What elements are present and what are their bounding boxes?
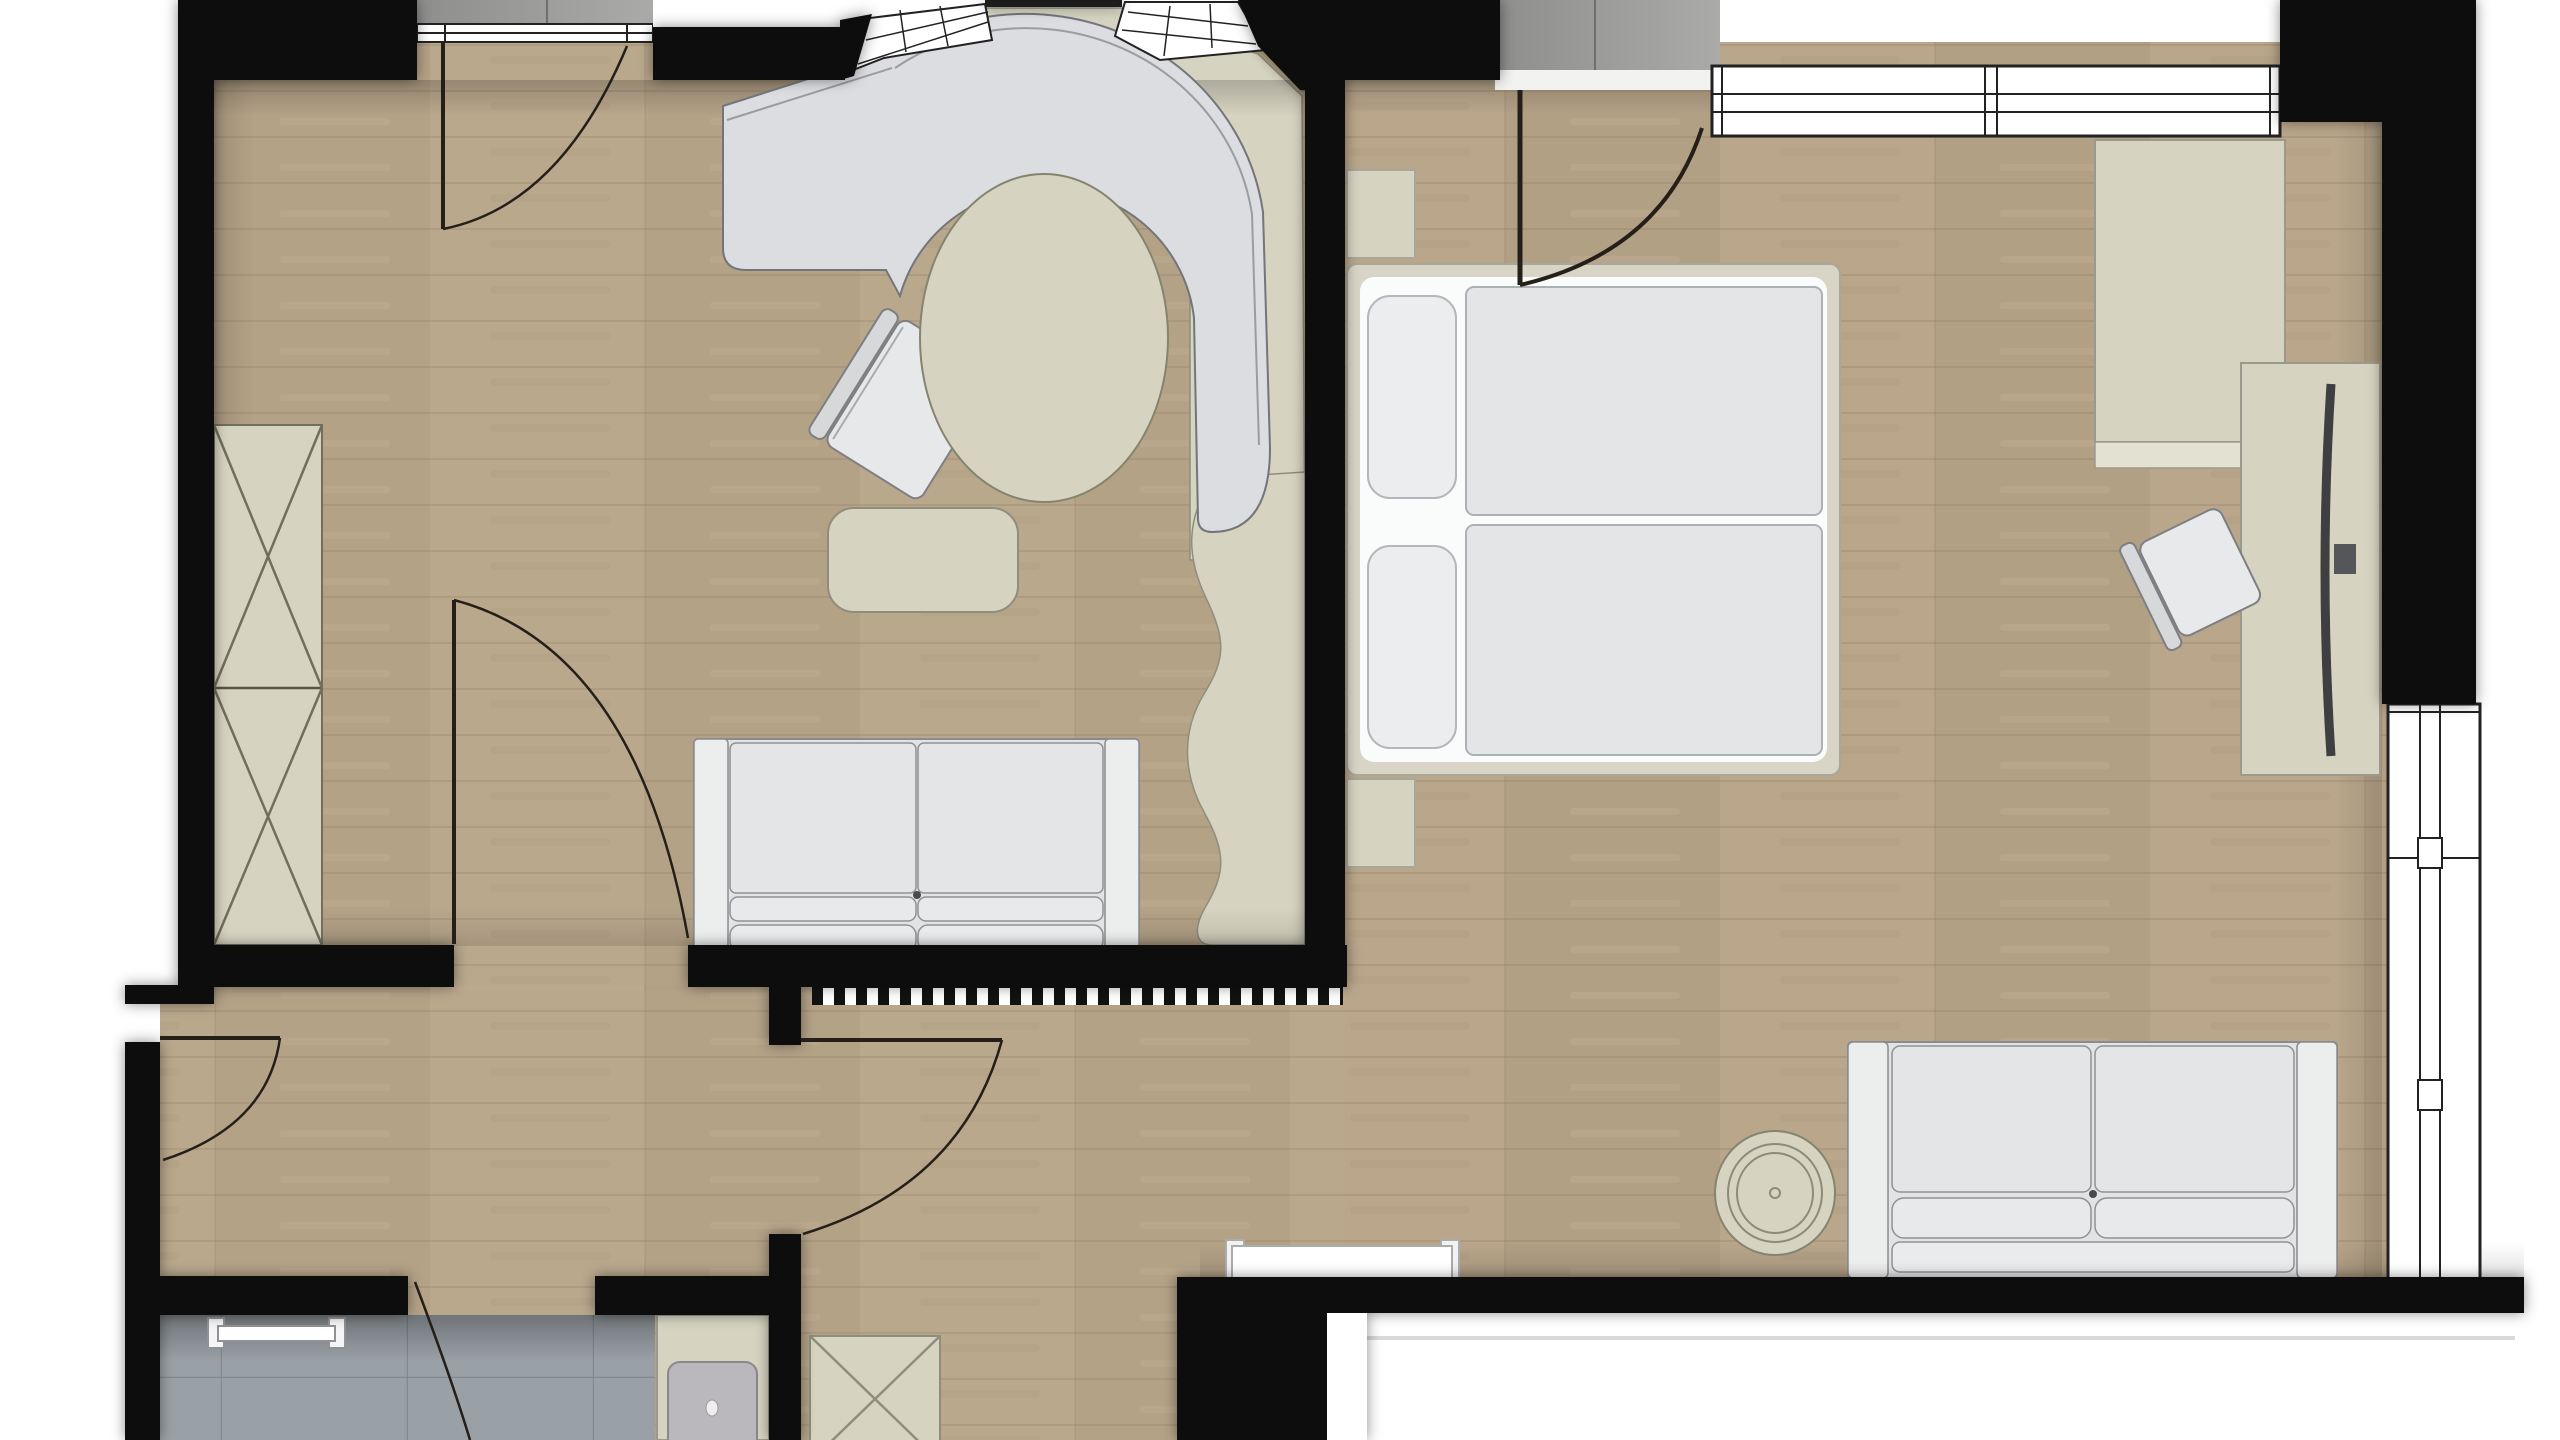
tv-mount [2334, 544, 2356, 574]
bottom-sofa-button [2089, 1190, 2097, 1198]
living-window-slab [417, 0, 653, 24]
bottom-sofa-seat-left [1892, 1046, 2091, 1192]
wall-left-upper [178, 0, 214, 948]
bottom-sofa-frontpad-right [2095, 1198, 2294, 1238]
wall-hall-left-lower [125, 1042, 160, 1440]
living-sofa-seat-right [918, 743, 1103, 893]
bench-top [1232, 1246, 1452, 1280]
bottom-sofa-armrest-right [2297, 1042, 2337, 1278]
bed-pillow-top [1368, 296, 1456, 498]
nightstand-bottom [1347, 779, 1415, 867]
wall-east [2382, 122, 2476, 704]
wall-top-right-corner [2280, 0, 2476, 122]
bottom-sofa-backpad [1892, 1242, 2294, 1272]
bed-pillow-bottom [1368, 546, 1456, 748]
living-sofa-armrest-right [1105, 739, 1139, 953]
sink-unit [657, 1315, 769, 1440]
plan-content [125, 0, 2524, 1440]
living-sofa-frontpad-left [730, 897, 916, 921]
wall-hall-left-jog [125, 985, 214, 1004]
wall-top-left-corner [180, 0, 417, 80]
wardrobe-body [214, 425, 322, 945]
hatch-strip [812, 988, 1343, 1005]
living-sofa-frontpad-right [918, 897, 1103, 921]
wall-south-band [1177, 1277, 2524, 1313]
wall-living-bottom-left [178, 945, 454, 987]
wall-living-bottom-right [688, 945, 1347, 987]
wall-bedroom-top-left [1345, 0, 1500, 80]
bed-mattress-bottom [1466, 525, 1822, 755]
bedroom-slab [1495, 0, 1720, 70]
side-stool [1715, 1131, 1835, 1255]
east-window-handle-bottom [2418, 1080, 2442, 1110]
coffee-table [828, 508, 1018, 612]
wall-bathroom-top-right [595, 1276, 769, 1315]
wall-divider [1305, 0, 1345, 985]
towel-rail-bar [218, 1326, 335, 1341]
bedroom-door-slab [1495, 0, 1720, 90]
bed-mattress-top [1466, 287, 1822, 515]
tv-desk [2241, 363, 2380, 775]
tv-desk-top [2241, 363, 2380, 775]
living-sofa-button [913, 891, 921, 899]
window-bedroom-top [1712, 66, 2280, 136]
patch-white-sliver [1327, 1313, 1367, 1440]
window-living-top [417, 0, 653, 42]
white-strip-top-mid [653, 0, 845, 27]
floor-plan-canvas [0, 0, 2560, 1440]
window-east-wall [2388, 704, 2480, 1288]
east-window-handle-top [2418, 838, 2442, 868]
bottom-sofa [1848, 1042, 2337, 1278]
wall-bay-top-strip [985, 0, 1122, 7]
living-sofa [694, 739, 1139, 953]
bottom-sofa-frontpad-left [1892, 1198, 2091, 1238]
stool-top [1715, 1131, 1835, 1255]
nightstand-top [1347, 170, 1415, 258]
sink-faucet-dot [706, 1400, 718, 1416]
wall-hall-stub-top [769, 985, 801, 1045]
floor-plan [0, 0, 2560, 1440]
east-window-band [2388, 704, 2480, 1288]
wardrobe [214, 425, 322, 945]
wall-south-column [1177, 1312, 1327, 1440]
wall-top-mid [653, 27, 845, 80]
wall-bathroom-top-left [160, 1276, 408, 1315]
bedroom-slab-sill [1495, 70, 1720, 90]
bottom-sofa-seat-right [2095, 1046, 2294, 1192]
living-sofa-armrest-left [694, 739, 728, 953]
xcab-body [810, 1336, 940, 1440]
storage-cabinet-x [810, 1336, 940, 1440]
bottom-sofa-armrest-left [1848, 1042, 1888, 1278]
living-sofa-seat-left [730, 743, 916, 893]
double-bed [1347, 264, 1840, 775]
round-table [920, 174, 1168, 502]
wall-hall-stub-bottom [769, 1234, 801, 1440]
